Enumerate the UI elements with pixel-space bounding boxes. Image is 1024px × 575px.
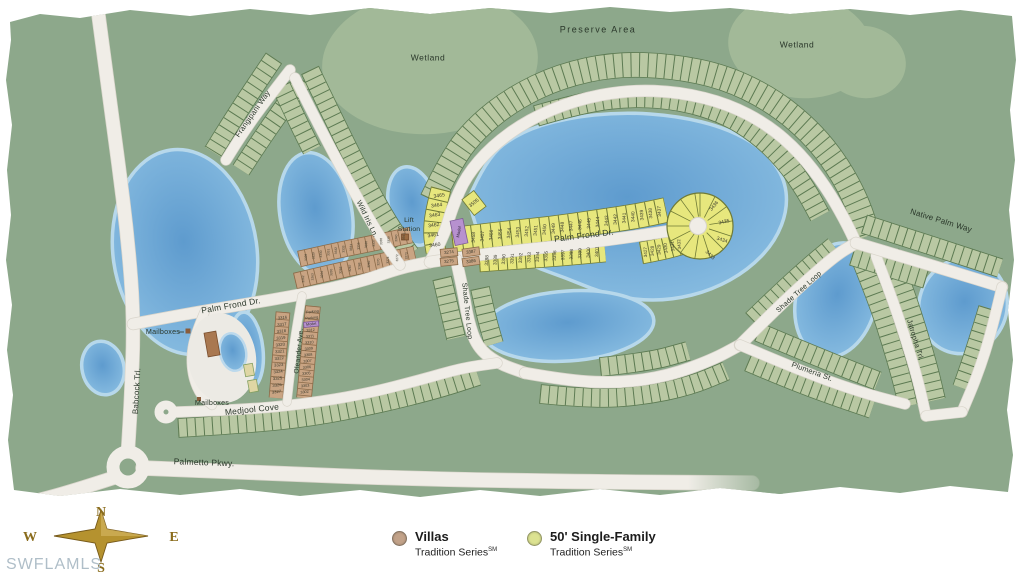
svg-text:3444: 3444: [595, 216, 601, 227]
label-mailboxes_lower: Mailboxes: [195, 398, 229, 407]
svg-text:3334: 3334: [349, 244, 353, 251]
svg-text:3438: 3438: [648, 207, 654, 218]
svg-text:3304: 3304: [301, 377, 310, 382]
svg-text:3428: 3428: [650, 245, 655, 256]
map-canvas: 3465346434633462346134603505Model3458345…: [0, 0, 1024, 505]
svg-text:3329: 3329: [311, 252, 315, 259]
svg-text:3448: 3448: [560, 221, 566, 232]
svg-text:3341: 3341: [402, 233, 406, 240]
svg-text:3333: 3333: [341, 245, 345, 252]
svg-text:3311: 3311: [306, 334, 315, 339]
svg-text:3320: 3320: [275, 341, 285, 347]
svg-text:3339: 3339: [387, 236, 391, 243]
svg-text:3454: 3454: [506, 227, 513, 238]
svg-text:3307: 3307: [303, 359, 312, 364]
legend: Villas Tradition SeriesSM 50' Single-Fam…: [0, 527, 1024, 567]
svg-text:3452: 3452: [524, 225, 531, 236]
svg-text:3439: 3439: [639, 209, 645, 220]
svg-text:3265: 3265: [329, 269, 333, 276]
svg-text:3393: 3393: [526, 252, 532, 263]
svg-text:3449: 3449: [551, 223, 557, 234]
svg-text:3263: 3263: [310, 273, 314, 280]
label-wetland_left: Wetland: [411, 52, 446, 62]
svg-text:3340: 3340: [394, 234, 398, 241]
legend-single-family-sublabel: Tradition SeriesSM: [550, 544, 656, 559]
svg-text:3458: 3458: [471, 232, 478, 243]
svg-text:3270: 3270: [376, 258, 380, 265]
svg-text:3455: 3455: [497, 228, 504, 239]
label-lift_station_line1: Lift: [404, 217, 414, 224]
svg-text:3336: 3336: [364, 241, 368, 248]
legend-villas-label: Villas: [415, 529, 497, 544]
svg-text:3427: 3427: [643, 247, 648, 258]
svg-text:3325: 3325: [273, 375, 283, 381]
mailbox-kiosk: [186, 329, 191, 334]
svg-text:3268: 3268: [357, 262, 361, 269]
svg-text:3429: 3429: [657, 244, 662, 255]
site-plan-screenshot: 3465346434633462346134603505Model3458345…: [0, 0, 1024, 575]
svg-text:3271: 3271: [386, 256, 390, 263]
svg-text:3317: 3317: [277, 321, 287, 327]
svg-text:3323: 3323: [274, 362, 284, 368]
svg-text:3392: 3392: [518, 252, 524, 263]
svg-text:3446: 3446: [577, 219, 583, 230]
svg-text:3335: 3335: [357, 242, 361, 249]
label-mailboxes_upper: Mailboxes: [146, 327, 180, 336]
svg-text:3457: 3457: [479, 230, 486, 241]
label-preserve_area: Preserve Area: [560, 24, 637, 34]
svg-text:3272: 3272: [395, 254, 399, 261]
sport-court: [244, 363, 255, 376]
svg-text:3437: 3437: [657, 206, 663, 217]
svg-text:3440: 3440: [630, 211, 636, 222]
svg-text:3456: 3456: [488, 229, 495, 240]
svg-text:3391: 3391: [509, 253, 515, 264]
svg-text:3389: 3389: [492, 254, 498, 265]
svg-text:3322: 3322: [274, 355, 284, 361]
legend-single-family-label: 50' Single-Family: [550, 529, 656, 544]
svg-text:3273: 3273: [405, 252, 409, 259]
svg-text:3390: 3390: [501, 253, 507, 264]
svg-text:3269: 3269: [367, 260, 371, 267]
label-lift_station_line2: Station: [398, 226, 421, 233]
svg-text:3395: 3395: [543, 250, 549, 261]
svg-text:3398: 3398: [569, 248, 574, 259]
svg-text:3331: 3331: [326, 249, 330, 256]
svg-text:3397: 3397: [560, 249, 565, 260]
single-family-color-dot: [527, 531, 542, 546]
svg-text:3394: 3394: [535, 251, 541, 262]
svg-text:3450: 3450: [542, 224, 549, 235]
svg-text:3332: 3332: [334, 247, 338, 254]
label-wetland_right: Wetland: [780, 39, 815, 49]
svg-text:3330: 3330: [319, 250, 323, 257]
svg-text:3441: 3441: [622, 212, 628, 223]
svg-text:3400: 3400: [586, 247, 591, 258]
svg-text:3337: 3337: [372, 239, 376, 246]
villas-color-dot: [392, 531, 407, 546]
svg-text:3443: 3443: [604, 215, 610, 226]
label-palmetto: Palmetto Pkwy.: [173, 456, 234, 468]
svg-text:3318: 3318: [276, 328, 286, 334]
svg-text:3447: 3447: [568, 220, 574, 231]
svg-text:3319: 3319: [276, 335, 286, 341]
svg-text:3328: 3328: [304, 254, 308, 261]
svg-text:3401: 3401: [594, 246, 599, 257]
svg-text:3316: 3316: [278, 315, 288, 321]
svg-text:3264: 3264: [320, 271, 324, 278]
svg-text:3338: 3338: [379, 238, 383, 245]
svg-text:3451: 3451: [533, 225, 540, 236]
sport-court: [248, 379, 259, 392]
svg-text:3327: 3327: [272, 389, 282, 395]
svg-text:3266: 3266: [339, 266, 343, 273]
svg-text:3453: 3453: [515, 226, 522, 237]
svg-text:3326: 3326: [272, 382, 282, 388]
svg-text:3321: 3321: [275, 348, 285, 354]
lot-band: [442, 278, 456, 338]
svg-text:3445: 3445: [586, 218, 592, 229]
compass-n: N: [96, 505, 106, 520]
legend-villas-sublabel: Tradition SeriesSM: [415, 544, 497, 559]
legend-item-single-family: 50' Single-Family Tradition SeriesSM: [527, 529, 656, 559]
svg-text:3324: 3324: [273, 368, 283, 374]
svg-text:3262: 3262: [301, 275, 305, 282]
svg-text:3388: 3388: [484, 255, 490, 266]
svg-text:3396: 3396: [552, 250, 558, 261]
svg-text:3267: 3267: [348, 264, 352, 271]
svg-text:3442: 3442: [613, 214, 619, 225]
community-site-plan-map: 3465346434633462346134603505Model3458345…: [0, 0, 1024, 575]
svg-text:3399: 3399: [577, 248, 582, 259]
legend-item-villas: Villas Tradition SeriesSM: [392, 529, 497, 559]
